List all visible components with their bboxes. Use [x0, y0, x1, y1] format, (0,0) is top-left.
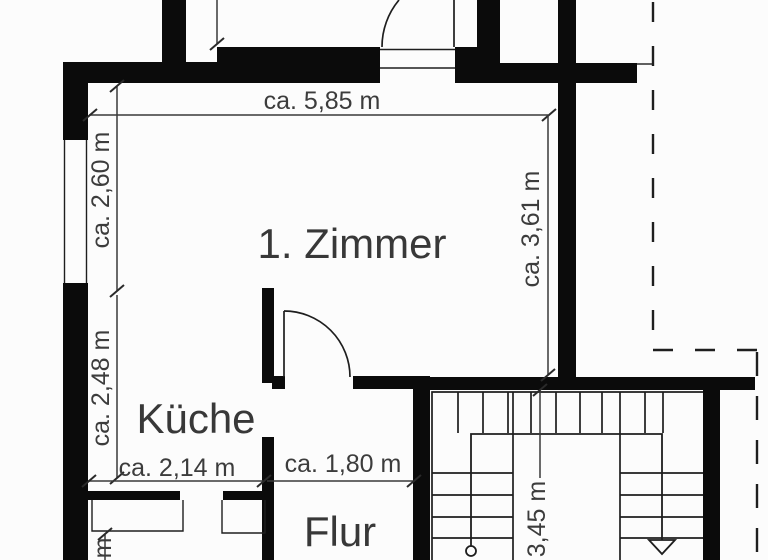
dimension-label: ca. 5,85 m [264, 87, 381, 115]
wall-segment [477, 0, 500, 47]
dimension-hall-width: ca. 1,80 m [267, 450, 421, 487]
wall-segment [262, 288, 274, 383]
wall-segment [455, 47, 500, 83]
wall-segment [500, 63, 558, 83]
wall-segment [558, 0, 576, 389]
dimension-label: ca. 2,60 m [87, 132, 115, 249]
room-label-kueche: Küche [136, 395, 255, 442]
room-label-flur: Flur [304, 508, 376, 555]
wall-segment [272, 376, 285, 389]
room-label-zimmer: 1. Zimmer [258, 220, 447, 267]
dimension-label: ca. 2,14 m [119, 454, 236, 482]
wall-segment [88, 491, 180, 500]
wall-segment [223, 491, 263, 500]
wall-segment [63, 283, 88, 560]
dimension-label: m [89, 538, 117, 559]
wall-segment [576, 63, 637, 83]
floor-plan: ca. 5,85 m ca. 2,60 m ca. 2,48 m ca. 2,1… [0, 0, 768, 560]
dimension-label: ca. 3,61 m [517, 171, 545, 288]
wall-segment [63, 62, 217, 83]
wall-segment [217, 47, 380, 83]
wall-segment [162, 0, 186, 62]
dimension-label: 3,45 m [523, 481, 551, 557]
wall-segment [430, 377, 755, 390]
dimension-label: ca. 1,80 m [285, 450, 402, 478]
dimension-label: ca. 2,48 m [87, 330, 115, 447]
wall-segment [703, 390, 720, 560]
wall-segment [413, 377, 430, 560]
wall-segment [262, 437, 274, 560]
